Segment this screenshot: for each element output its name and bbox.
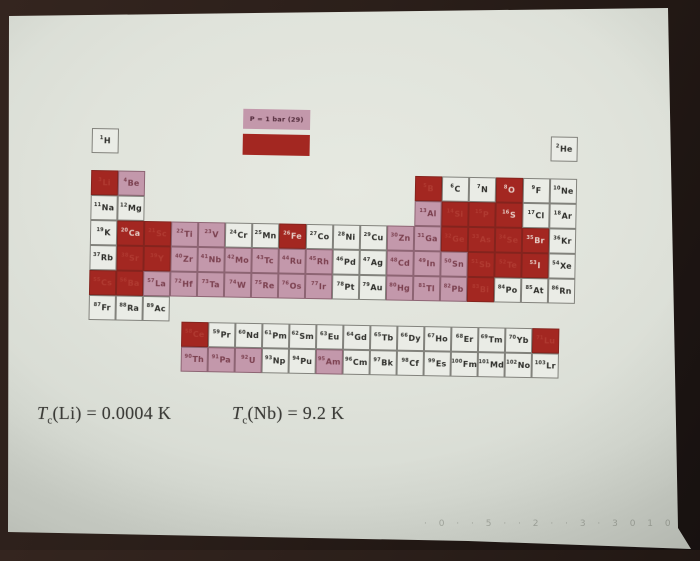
- element-cell-Hf: 72Hf: [170, 271, 197, 296]
- element-cell-Ce: 58Ce: [181, 322, 208, 347]
- element-cell-Am: 95Am: [316, 349, 343, 374]
- element-cell-Es: 99Es: [424, 351, 451, 376]
- element-cell-Hg: 80Hg: [386, 275, 413, 300]
- tc-niobium-caption: Tc(Nb) = 9.2 K: [232, 403, 344, 427]
- element-cell-At: 85At: [521, 278, 548, 303]
- element-cell-Er: 68Er: [451, 327, 478, 352]
- element-cell-Pr: 59Pr: [208, 322, 235, 347]
- legend-ambient-pressure-swatch: P = 1 bar (29): [243, 109, 310, 130]
- element-cell-Ar: 18Ar: [549, 203, 576, 228]
- legend-ambient-pressure-label: P = 1 bar (29): [250, 115, 304, 124]
- element-cell-Zr: 40Zr: [170, 246, 197, 271]
- element-cell-K: 19K: [90, 220, 117, 245]
- element-cell-Cf: 98Cf: [397, 351, 424, 376]
- element-cell-Dy: 66Dy: [397, 326, 424, 351]
- element-cell-B: 5B: [415, 176, 442, 201]
- photo-of-projected-slide: { "photo": { "faint_marks": "· 0 · · 5 ·…: [0, 0, 700, 550]
- element-cell-Mo: 42Mo: [224, 247, 251, 272]
- tc-value: (Li) = 0.0004 K: [53, 403, 172, 423]
- element-cell-Cl: 17Cl: [522, 203, 549, 228]
- element-cell-W: 74W: [224, 272, 251, 297]
- element-cell-Ta: 73Ta: [197, 272, 224, 297]
- element-cell-Nd: 60Nd: [235, 323, 262, 348]
- element-cell-Cu: 29Cu: [360, 225, 387, 250]
- element-cell-Bi: 83Bi: [467, 277, 494, 302]
- element-cell-Tl: 81Tl: [413, 276, 440, 301]
- element-cell-Pu: 94Pu: [289, 349, 316, 374]
- element-cell-Pt: 78Pt: [332, 274, 359, 299]
- element-cell-U: 92U: [235, 348, 262, 373]
- element-cell-Xe: 54Xe: [548, 253, 575, 278]
- element-cell-Re: 75Re: [251, 273, 278, 298]
- element-cell-Pb: 82Pb: [440, 276, 467, 301]
- element-cell-Gd: 64Gd: [343, 325, 370, 350]
- element-cell-Eu: 63Eu: [316, 324, 343, 349]
- tc-variable: T: [37, 403, 47, 423]
- element-cell-Cm: 96Cm: [343, 350, 370, 375]
- element-cell-Y: 39Y: [143, 246, 170, 271]
- element-cell-Cd: 48Cd: [386, 250, 413, 275]
- element-cell-Se: 34Se: [495, 227, 522, 252]
- element-cell-Ho: 67Ho: [424, 326, 451, 351]
- element-cell-Cs: 55Cs: [89, 270, 116, 295]
- element-cell-Tb: 65Tb: [370, 325, 397, 350]
- tc-lithium-caption: Tc(Li) = 0.0004 K: [37, 403, 171, 427]
- element-cell-O: 8O: [496, 177, 523, 202]
- element-cell-Mg: 12Mg: [117, 195, 144, 220]
- tc-variable: T: [232, 403, 242, 423]
- element-cell-Au: 79Au: [359, 275, 386, 300]
- element-cell-Fm: 100Fm: [451, 352, 478, 377]
- element-cell-Lr: 103Lr: [531, 353, 558, 378]
- element-cell-Br: 35Br: [522, 228, 549, 253]
- element-cell-Si: 14Si: [441, 201, 468, 226]
- element-cell-Tc: 43Tc: [251, 248, 278, 273]
- legend-high-pressure-swatch: [243, 134, 310, 156]
- element-cell-F: 9F: [523, 178, 550, 203]
- element-cell-Yb: 70Yb: [505, 328, 532, 353]
- element-cell-In: 49In: [413, 251, 440, 276]
- element-cell-P: 15P: [468, 202, 495, 227]
- element-cell-N: 7N: [469, 177, 496, 202]
- element-cell-Ca: 20Ca: [117, 220, 144, 245]
- slide-area: P = 1 bar (29) 1H2He3Li4Be5B6C7N8O9F10Ne…: [0, 0, 700, 550]
- element-cell-Sn: 50Sn: [440, 251, 467, 276]
- element-cell-Kr: 36Kr: [549, 228, 576, 253]
- element-cell-Po: 84Po: [494, 277, 521, 302]
- element-cell-No: 102No: [504, 353, 531, 378]
- element-cell-Be: 4Be: [118, 170, 145, 195]
- element-cell-As: 33As: [468, 227, 495, 252]
- element-cell-Ga: 31Ga: [414, 226, 441, 251]
- element-cell-La: 57La: [143, 271, 170, 296]
- element-cell-Bk: 97Bk: [370, 350, 397, 375]
- tc-value: (Nb) = 9.2 K: [248, 403, 345, 423]
- element-cell-Pm: 61Pm: [262, 323, 289, 348]
- element-cell-Pa: 91Pa: [208, 347, 235, 372]
- element-cell-Th: 90Th: [181, 347, 208, 372]
- element-cell-Mn: 25Mn: [252, 223, 279, 248]
- element-cell-He: 2He: [550, 136, 577, 161]
- element-cell-Lu: 71Lu: [532, 328, 559, 353]
- element-cell-S: 16S: [495, 202, 522, 227]
- element-cell-I: 53I: [521, 253, 548, 278]
- element-cell-Co: 27Co: [306, 224, 333, 249]
- element-cell-Ne: 10Ne: [550, 178, 577, 203]
- element-cell-Tm: 69Tm: [478, 327, 505, 352]
- element-cell-Ag: 47Ag: [359, 250, 386, 275]
- element-cell-V: 23V: [198, 222, 225, 247]
- element-cell-Sc: 21Sc: [144, 221, 171, 246]
- element-cell-Pd: 46Pd: [332, 249, 359, 274]
- element-cell-Os: 76Os: [278, 273, 305, 298]
- element-cell-Cr: 24Cr: [225, 222, 252, 247]
- periodic-table: P = 1 bar (29) 1H2He3Li4Be5B6C7N8O9F10Ne…: [0, 0, 700, 561]
- element-cell-Ge: 32Ge: [441, 226, 468, 251]
- faint-photo-marks: · 0 · · 5 · · 2 · · 3 · 3 0 1 0: [424, 519, 690, 529]
- element-cell-Te: 52Te: [494, 252, 521, 277]
- element-cell-Ni: 28Ni: [333, 224, 360, 249]
- element-cell-Fr: 87Fr: [88, 295, 115, 320]
- element-cell-Li: 3Li: [91, 170, 118, 195]
- element-cell-Sr: 38Sr: [116, 245, 143, 270]
- element-cell-Sb: 51Sb: [467, 252, 494, 277]
- element-cell-H: 1H: [92, 128, 119, 153]
- element-cell-C: 6C: [442, 176, 469, 201]
- element-cell-Rn: 86Rn: [548, 278, 575, 303]
- element-cell-Rb: 37Rb: [89, 245, 116, 270]
- element-cell-Ra: 88Ra: [115, 295, 142, 320]
- element-cell-Np: 93Np: [262, 348, 289, 373]
- element-cell-Nb: 41Nb: [197, 247, 224, 272]
- element-cell-Al: 13Al: [414, 201, 441, 226]
- element-cell-Zn: 30Zn: [387, 225, 414, 250]
- element-cell-Ir: 77Ir: [305, 274, 332, 299]
- element-cell-Sm: 62Sm: [289, 324, 316, 349]
- element-cell-Ti: 22Ti: [171, 221, 198, 246]
- element-cell-Fe: 26Fe: [279, 223, 306, 248]
- element-cell-Ba: 56Ba: [116, 270, 143, 295]
- element-cell-Md: 101Md: [477, 352, 504, 377]
- element-cell-Na: 11Na: [90, 195, 117, 220]
- element-cell-Rh: 45Rh: [305, 249, 332, 274]
- element-cell-Ac: 89Ac: [142, 296, 169, 321]
- element-cell-Ru: 44Ru: [278, 248, 305, 273]
